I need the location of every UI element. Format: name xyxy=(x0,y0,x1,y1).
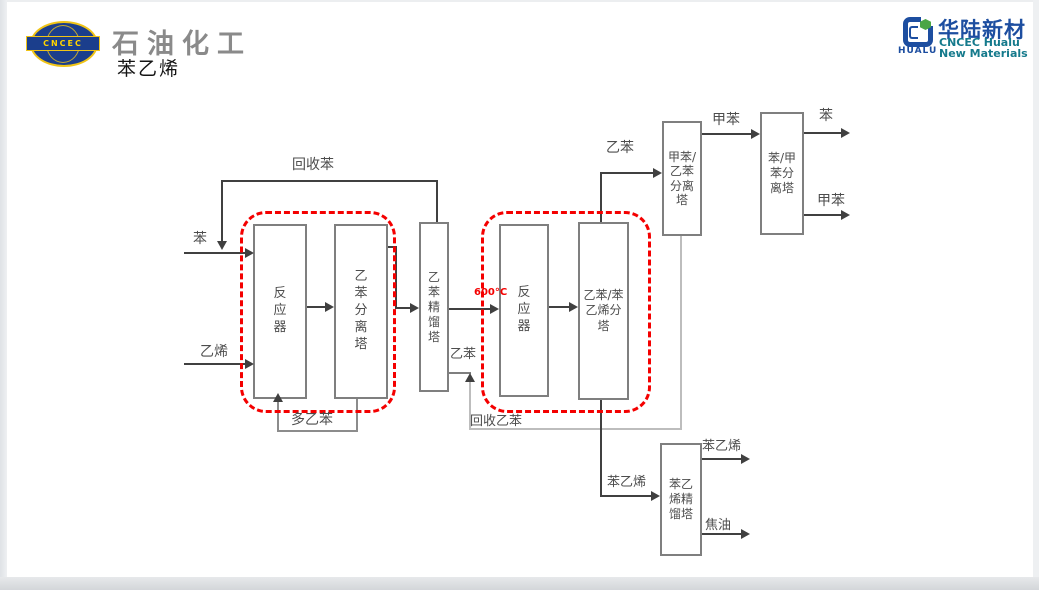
arrow-ethylene-feed xyxy=(245,359,254,369)
label-recycled-ethylbenzene: 回收乙苯 xyxy=(470,410,522,429)
hualu-logo-word: HUALU xyxy=(898,46,937,56)
line-polyeb-c xyxy=(277,401,279,432)
label-temperature: 600°C xyxy=(474,287,507,298)
unit-eb-distillation-tower: 乙 苯 精 馏 塔 xyxy=(419,222,449,392)
frame-bottom xyxy=(0,577,1039,590)
arrow-polyeb-return xyxy=(273,393,283,402)
label-styrene-out: 苯乙烯 xyxy=(702,435,741,454)
line-recycled-benzene-top xyxy=(221,180,438,182)
line-ebsep-out-b xyxy=(395,246,397,309)
label-ethylbenzene-top: 乙苯 xyxy=(606,137,634,157)
line-polyeb-a xyxy=(356,395,358,432)
line-toluene-out xyxy=(800,214,843,216)
frame-left xyxy=(0,0,7,590)
label-toluene-out: 甲苯 xyxy=(817,190,845,210)
unit-eb-styrene-separation-tower: 乙苯/苯 乙烯分 塔 xyxy=(578,222,629,400)
arrow-toluene-out xyxy=(841,210,850,220)
line-recycled-eb-down xyxy=(680,232,682,430)
arrow-toluene-mid xyxy=(751,129,760,139)
label-benzene-feed: 苯 xyxy=(193,228,207,248)
arrow-eb-to-tolebsep xyxy=(653,168,662,178)
line-tar-out xyxy=(698,533,743,535)
line-styrene-down xyxy=(600,396,602,497)
arrow-ebsep-to-ebdist xyxy=(410,303,419,313)
arrow-benzene-out xyxy=(841,128,850,138)
line-benzene-out xyxy=(800,132,843,134)
cncec-logo-icon: CNCEC xyxy=(30,21,98,67)
line-toluene-mid xyxy=(698,133,753,135)
unit-eb-separation-tower: 乙 苯 分 离 塔 xyxy=(334,224,388,399)
label-ethylbenzene-mid: 乙苯 xyxy=(450,343,476,362)
line-recycled-benzene-down xyxy=(221,181,223,243)
arrow-reactor2-to-sep xyxy=(569,302,578,312)
unit-reactor-2: 反 应 器 xyxy=(499,224,549,397)
label-recycled-benzene: 回收苯 xyxy=(292,154,334,174)
arrow-eb-600-feed xyxy=(490,304,499,314)
line-polyeb-b xyxy=(277,430,358,432)
unit-styrene-distillation-tower: 苯乙 烯精 馏塔 xyxy=(660,443,702,556)
label-styrene-feed: 苯乙烯 xyxy=(607,471,646,490)
unit-benzene-toluene-separation-tower: 苯/甲 苯分 离塔 xyxy=(760,112,804,235)
arrow-reactor1-to-ebsep xyxy=(325,302,334,312)
label-ethylene-feed: 乙烯 xyxy=(200,341,228,361)
label-benzene-out: 苯 xyxy=(819,105,833,125)
label-toluene-mid: 甲苯 xyxy=(712,109,740,129)
cncec-logo-text: CNCEC xyxy=(26,36,100,51)
label-tar-out: 焦油 xyxy=(705,514,731,533)
frame-top xyxy=(0,0,1039,2)
line-recycled-benzene-riser xyxy=(436,180,438,222)
arrow-styrene-feed xyxy=(651,491,660,501)
arrow-recycled-benzene xyxy=(217,241,227,250)
hualu-name-en2: New Materials xyxy=(939,47,1028,60)
line-eb-top-horizontal xyxy=(600,172,655,174)
line-styrene-out xyxy=(698,458,743,460)
arrow-recycled-eb-return xyxy=(465,373,475,382)
arrow-benzene-feed xyxy=(245,248,254,258)
arrow-tar-out xyxy=(741,529,750,539)
page-title: 苯乙烯 xyxy=(117,54,180,81)
label-poly-ethylbenzene: 多乙苯 xyxy=(291,409,333,429)
unit-toluene-eb-separation-tower: 甲苯/ 乙苯 分离 塔 xyxy=(662,121,702,236)
slide: CNCEC 石油化工 苯乙烯 HUALU 华陆新材 CNCEC Hualu Ne… xyxy=(0,0,1039,590)
line-eb-top-riser xyxy=(600,172,602,222)
line-ethylene-feed xyxy=(184,363,246,365)
hualu-logo-icon xyxy=(903,17,933,47)
line-styrene-feed xyxy=(600,495,653,497)
line-benzene-feed xyxy=(184,252,246,254)
hualu-inner-mark xyxy=(909,26,918,39)
arrow-styrene-out xyxy=(741,454,750,464)
unit-reactor-1: 反 应 器 xyxy=(253,224,307,399)
line-eb-600-feed xyxy=(445,308,492,310)
frame-right xyxy=(1033,0,1039,590)
